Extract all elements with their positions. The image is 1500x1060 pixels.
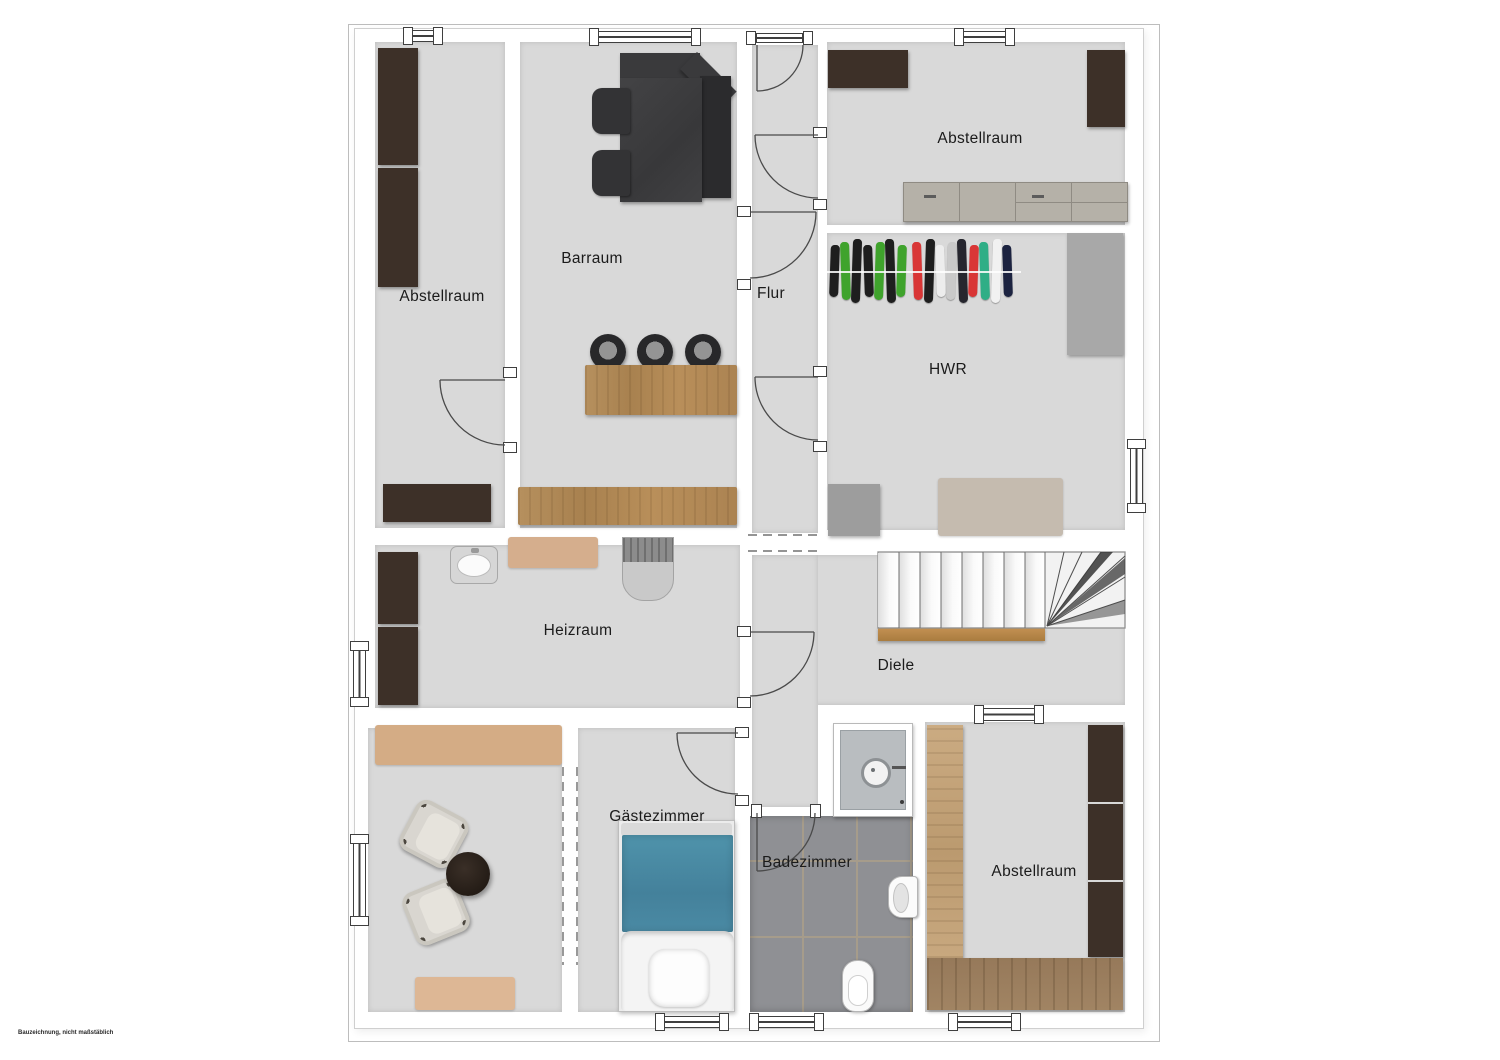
door-jamb <box>503 442 517 453</box>
window-abstellraum-br <box>951 1016 1018 1028</box>
window-abstellraum-tr <box>957 31 1012 43</box>
door-jamb <box>813 441 827 452</box>
boiler <box>622 537 674 601</box>
planned-wall-opening <box>562 766 578 966</box>
bench-tl <box>383 484 491 522</box>
hanging-clothes-item <box>829 245 840 297</box>
stair-first-step <box>878 627 1045 641</box>
room-label-diele: Diele <box>878 657 915 675</box>
door-jamb <box>737 279 751 290</box>
door-jamb <box>737 206 751 217</box>
shower-drain-icon <box>900 800 904 804</box>
dining-chair-2 <box>592 150 630 196</box>
door-jamb <box>813 199 827 210</box>
door-jamb <box>810 804 821 818</box>
hanging-clothes-item <box>863 245 874 297</box>
door-jamb <box>803 31 813 45</box>
room-label-gaestezimmer: Gästezimmer <box>609 808 704 826</box>
hanging-clothes-item <box>968 245 979 297</box>
door-jamb <box>813 127 827 138</box>
hanging-clothes-item <box>923 239 934 303</box>
shower <box>833 723 913 817</box>
room-diele-corridor <box>752 555 818 807</box>
opening-flur-diele <box>748 533 818 553</box>
sideboard-tr <box>903 182 1128 222</box>
shelf-heiz-2 <box>378 627 418 705</box>
room-label-flur: Flur <box>757 285 785 303</box>
clothes-rack <box>830 240 1018 302</box>
wood-cabinet-br <box>927 725 963 958</box>
shower-head-icon <box>861 758 891 788</box>
hanging-clothes-item <box>874 242 885 300</box>
door-jamb <box>735 795 749 806</box>
window-diele-br <box>977 708 1041 721</box>
hanging-clothes-item <box>896 245 907 297</box>
room-label-abstellraum-tl: Abstellraum <box>399 288 484 306</box>
hanging-clothes-item <box>851 239 862 303</box>
rug-hobby-bottom <box>415 977 515 1010</box>
wood-floor-br <box>927 958 1123 1010</box>
toilet <box>842 960 874 1012</box>
hanging-clothes-item <box>912 242 923 300</box>
room-label-hwr: HWR <box>929 361 967 379</box>
door-jamb <box>746 31 756 45</box>
rug-heizraum <box>508 537 598 568</box>
shelf-br <box>1088 725 1123 957</box>
door-jamb <box>503 367 517 378</box>
guest-bed <box>618 820 735 1012</box>
cabinet-tr-right <box>1087 50 1125 127</box>
window-badezimmer <box>752 1016 821 1028</box>
hanging-clothes-item <box>935 245 946 297</box>
rug-hobby-top <box>375 725 562 765</box>
door-jamb <box>751 804 762 818</box>
hanging-clothes-item <box>979 242 990 300</box>
bar-counter <box>585 365 737 415</box>
bath-sink <box>888 876 918 918</box>
coffee-table <box>446 852 490 896</box>
rug-hwr <box>938 478 1063 536</box>
cabinet-tr-left <box>828 50 908 88</box>
sideboard-barraum <box>518 487 737 525</box>
floorplan-canvas: Abstellraum Barraum Flur Abstellraum HWR… <box>0 0 1500 1060</box>
room-label-badezimmer: Badezimmer <box>762 854 852 872</box>
hanging-clothes-item <box>885 239 896 303</box>
disclaimer-text: Bauzeichnung, nicht maßstäblich <box>18 1030 113 1036</box>
shelf-tl-1 <box>378 48 418 165</box>
hanging-clothes-item <box>1002 245 1013 297</box>
door-jamb <box>735 727 749 738</box>
hanging-clothes-item <box>957 239 968 303</box>
shelf-tl-2 <box>378 168 418 287</box>
dining-table <box>620 78 702 202</box>
bed-blanket <box>622 835 733 932</box>
room-label-barraum: Barraum <box>561 250 623 268</box>
door-jamb <box>737 697 751 708</box>
door-jamb <box>813 366 827 377</box>
utility-sink <box>450 546 498 584</box>
window-barraum <box>592 31 698 43</box>
room-label-heizraum: Heizraum <box>544 622 613 640</box>
room-badezimmer-tiles <box>750 816 913 1012</box>
window-hwr <box>1130 442 1143 510</box>
corner-bench-right <box>700 76 731 198</box>
appliance-hwr <box>828 484 880 536</box>
room-label-abstellraum-tr: Abstellraum <box>937 130 1022 148</box>
dining-chair-1 <box>592 88 630 134</box>
bed-cushion <box>649 949 709 1007</box>
cabinet-hwr <box>1067 233 1123 355</box>
hanging-clothes-item <box>991 239 1002 303</box>
door-jamb <box>737 626 751 637</box>
shower-handle-icon <box>892 766 906 769</box>
window-hobbyraum <box>353 837 366 923</box>
shelf-heiz-1 <box>378 552 418 624</box>
room-label-abstellraum-br: Abstellraum <box>991 863 1076 881</box>
hanging-clothes-item <box>840 242 851 300</box>
hanging-clothes-item <box>946 242 957 300</box>
entry-door-threshold <box>756 33 803 43</box>
window-abstellraum-tl <box>406 30 440 42</box>
window-heizraum <box>353 644 366 704</box>
window-gaestezimmer <box>658 1016 726 1028</box>
